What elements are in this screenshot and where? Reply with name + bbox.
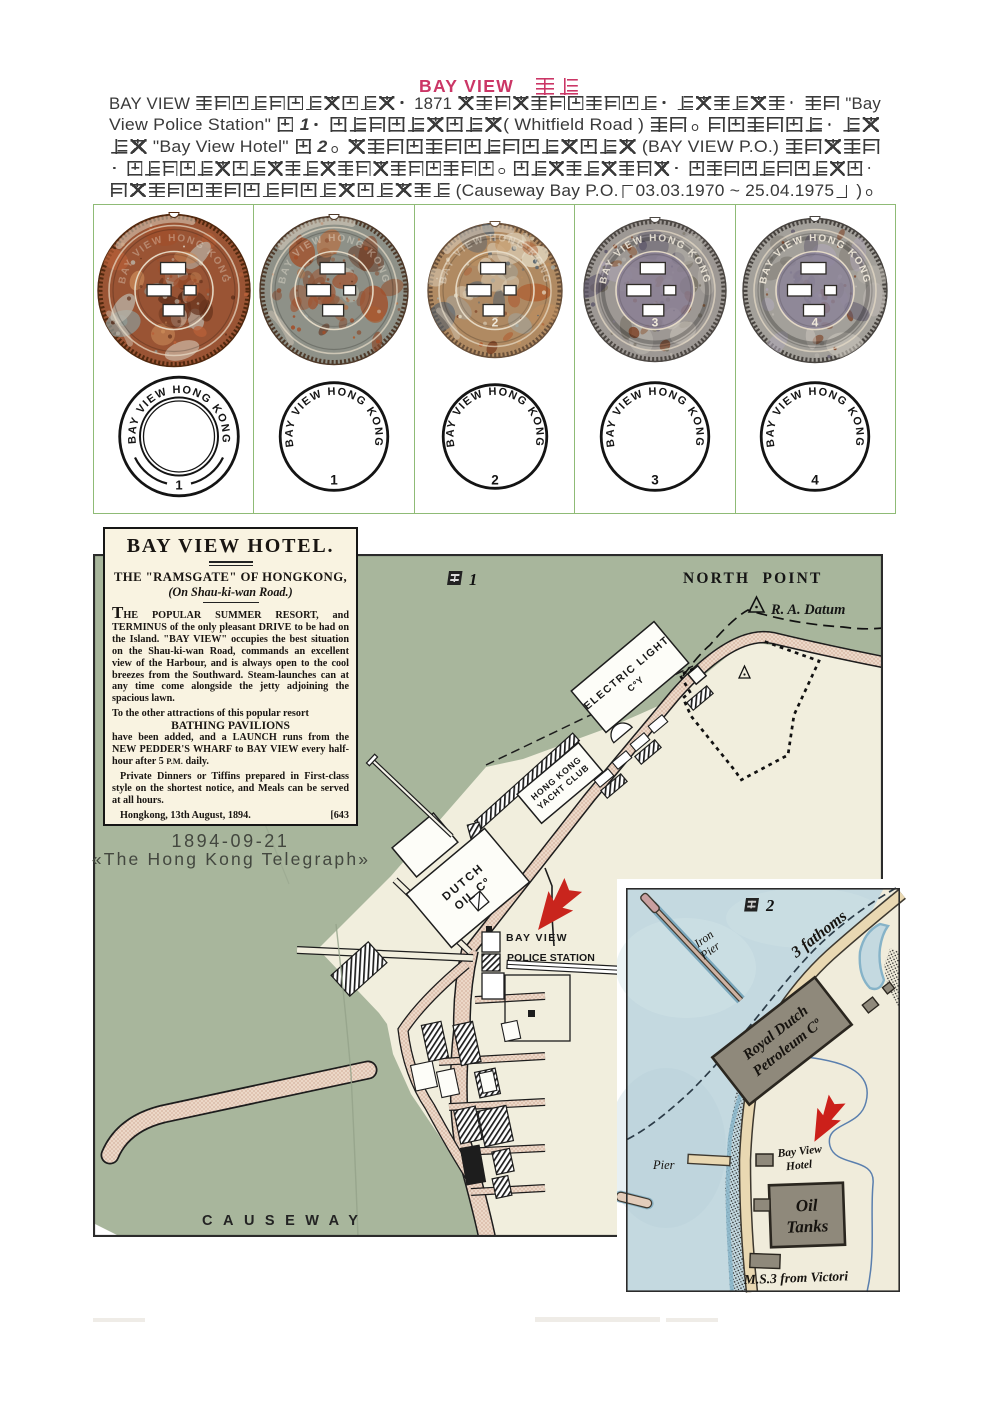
- svg-text:NORTH POINT: NORTH POINT: [683, 570, 823, 587]
- svg-text:R. A. Datum: R. A. Datum: [770, 602, 845, 618]
- svg-text:2: 2: [491, 316, 498, 330]
- svg-text:2: 2: [765, 896, 774, 915]
- svg-text:4: 4: [812, 473, 820, 488]
- svg-text:POLICE STATION: POLICE STATION: [507, 952, 595, 964]
- svg-text:CAUSEWAY: CAUSEWAY: [202, 1213, 368, 1229]
- svg-text:2: 2: [491, 473, 499, 488]
- svg-text:BAY VIEW: BAY VIEW: [506, 932, 568, 944]
- svg-text:BAY VIEW HONG KONG: BAY VIEW HONG KONG: [444, 386, 545, 448]
- svg-text:3: 3: [651, 473, 659, 488]
- svg-text:Pier: Pier: [652, 1158, 675, 1172]
- svg-text:1: 1: [469, 570, 477, 589]
- svg-text:4: 4: [812, 316, 819, 330]
- svg-text:BAY VIEW HONG KONG: BAY VIEW HONG KONG: [126, 384, 231, 444]
- svg-text:Oil: Oil: [795, 1196, 818, 1216]
- svg-text:Tanks: Tanks: [786, 1216, 829, 1236]
- svg-text:1: 1: [330, 473, 338, 488]
- svg-text:1: 1: [175, 478, 182, 493]
- svg-text:3: 3: [652, 316, 659, 330]
